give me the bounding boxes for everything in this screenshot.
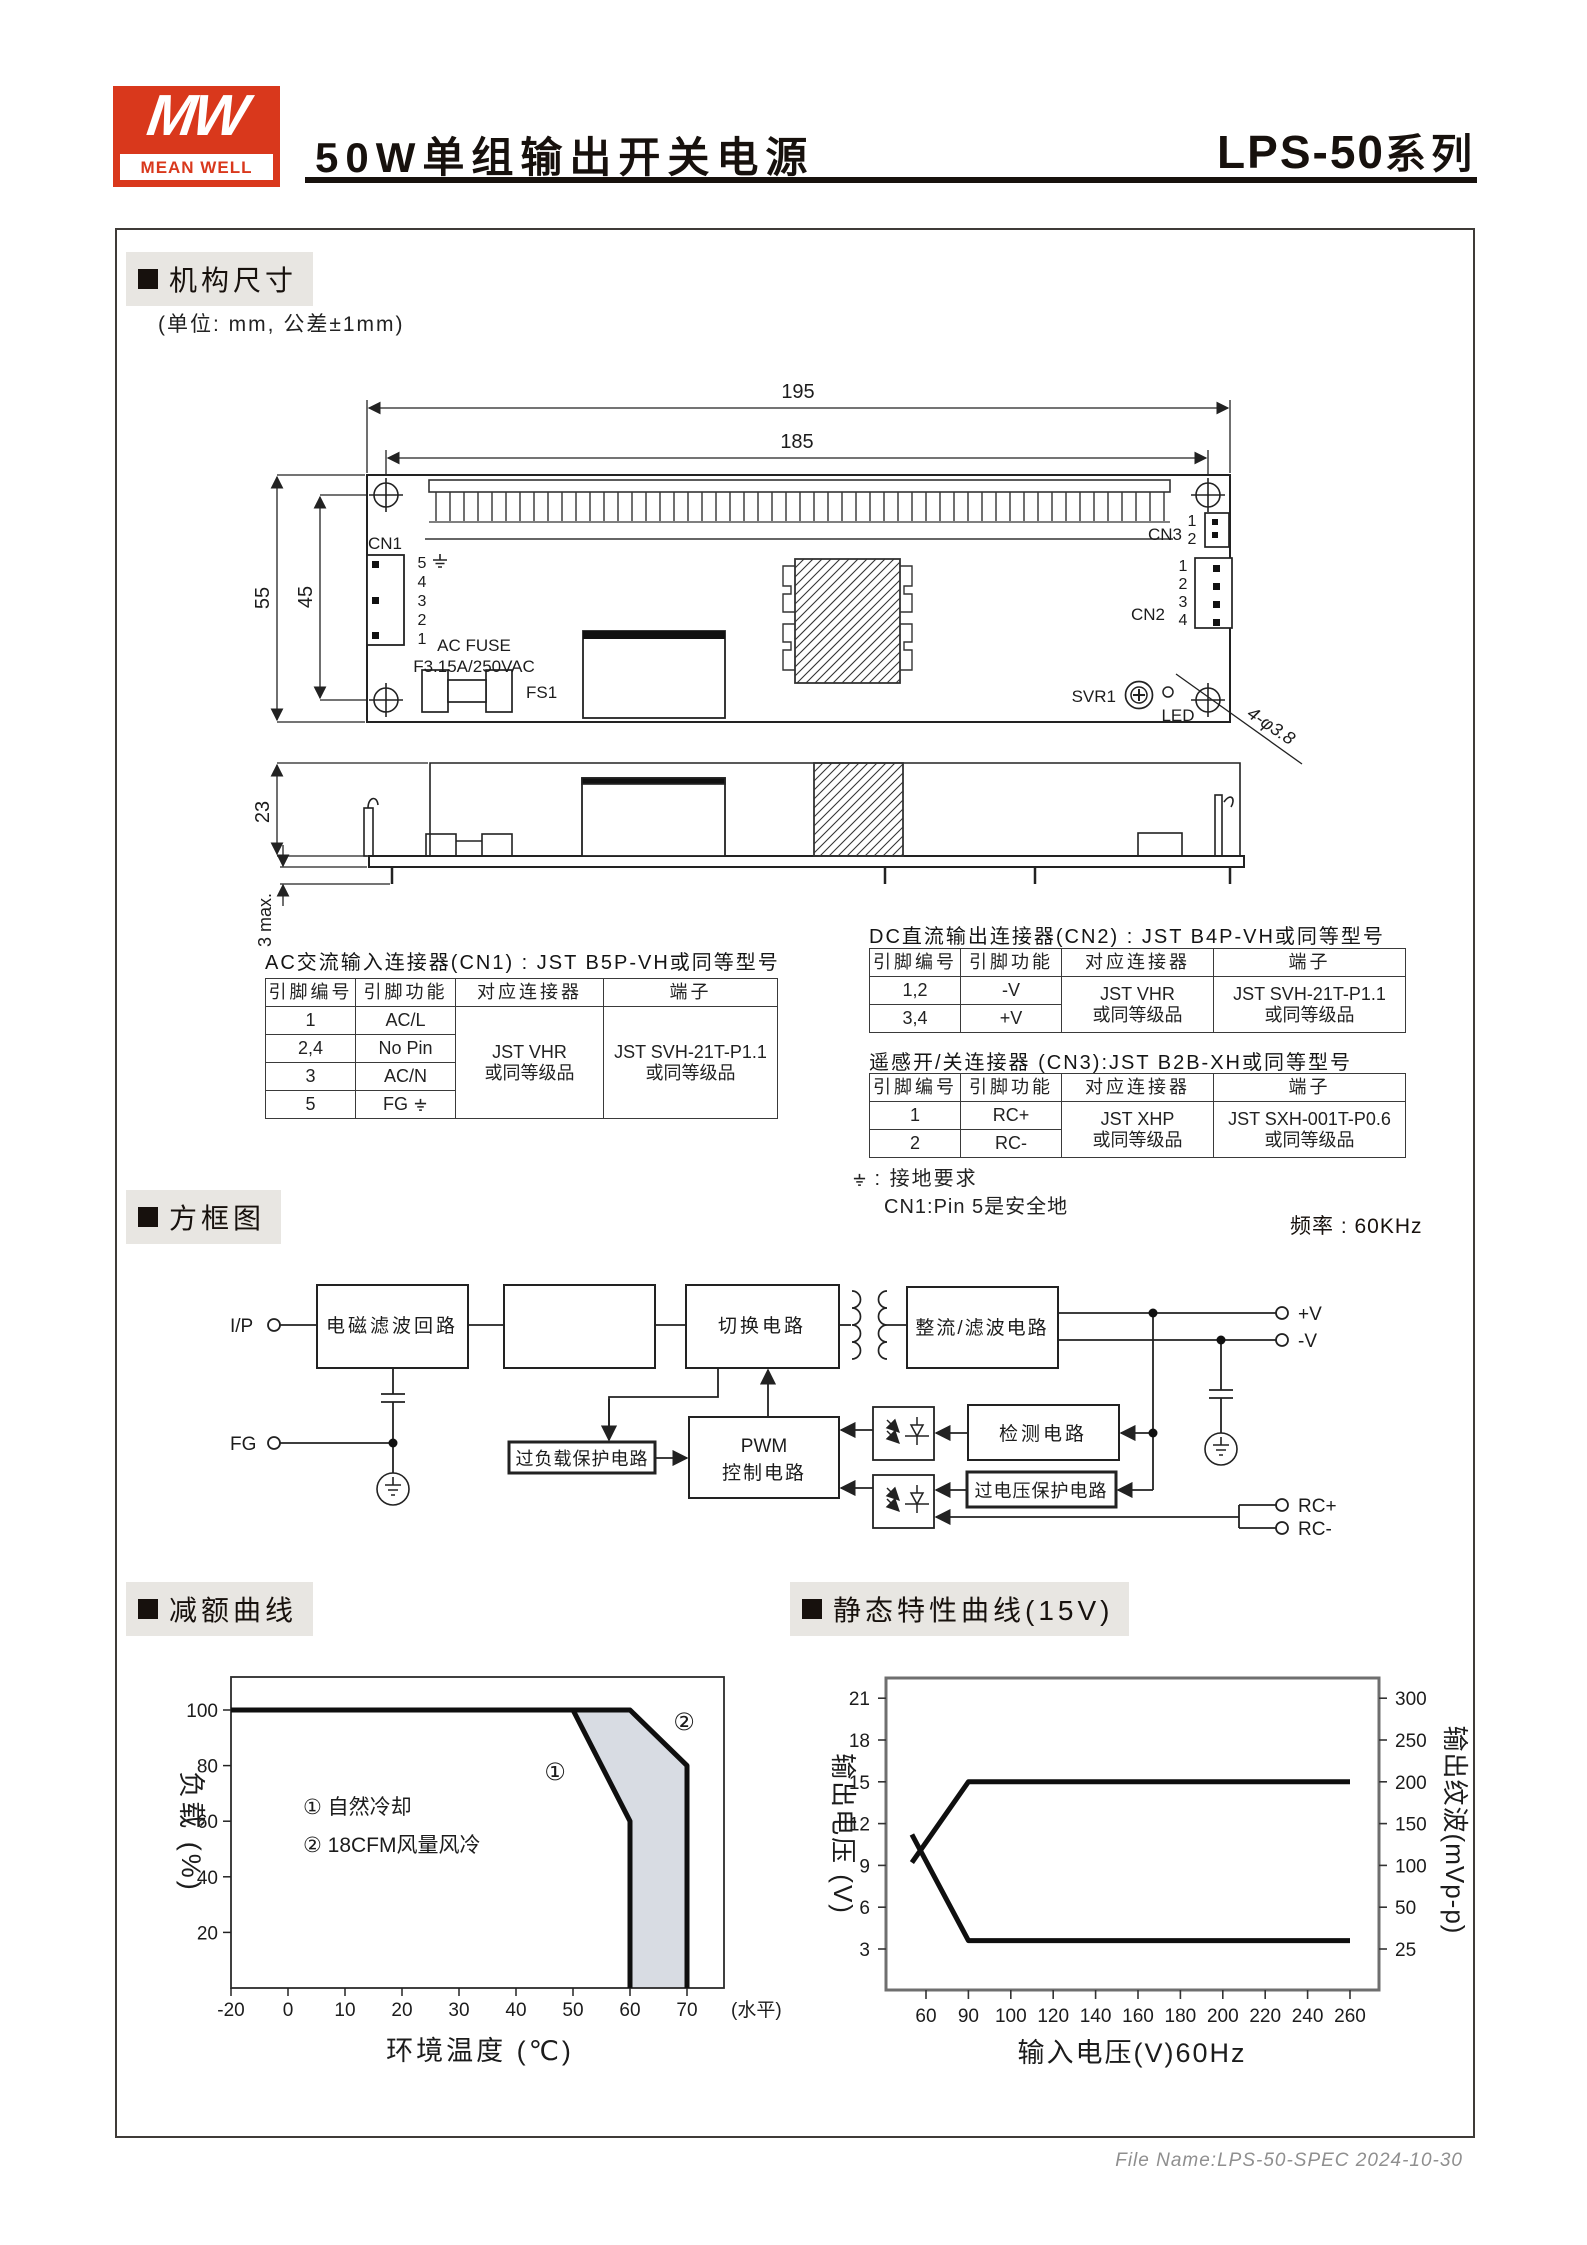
- table-cell: -V: [961, 977, 1062, 1005]
- svg-text:50: 50: [562, 2000, 583, 2021]
- svg-text:6: 6: [859, 1898, 870, 1919]
- page-title: 50W单组输出开关电源: [315, 124, 814, 185]
- table-cell: 1,2: [870, 977, 961, 1005]
- svg-text:21: 21: [849, 1689, 870, 1710]
- cn2-connector: 1234: [1179, 558, 1232, 629]
- terminal-rcminus: RC-: [1298, 1519, 1332, 1540]
- led-label: LED: [1161, 706, 1194, 725]
- svg-text:1: 1: [1188, 513, 1197, 530]
- datasheet-page: MW MEAN WELL 50W单组输出开关电源 LPS-50 系列 机构尺寸 …: [0, 0, 1587, 2245]
- dim-55: 55: [252, 587, 274, 609]
- cn3-connector: 12: [1188, 513, 1229, 548]
- box-switch: 切换电路: [718, 1315, 806, 1337]
- cn2-table-title: DC直流输出连接器(CN2) : JST B4P-VH或同等型号: [869, 920, 1385, 949]
- left-y-axis-label: 输出电压 (V): [828, 1753, 858, 1915]
- svg-text:2: 2: [1188, 531, 1197, 548]
- section-header-static-curve: 静态特性曲线(15V): [790, 1582, 1129, 1636]
- svg-text:3: 3: [859, 1940, 870, 1961]
- fs1-label: FS1: [526, 683, 557, 702]
- table-cell: 3: [266, 1063, 356, 1091]
- cn3-table: 引脚编号引脚功能对应连接器端子1RC+JST XHP或同等级品JST SXH-0…: [869, 1073, 1406, 1158]
- section-header-derating: 减额曲线: [126, 1582, 313, 1636]
- chart-legend: ① 自然冷却② 18CFM风量风冷: [303, 1796, 481, 1857]
- svg-text:1: 1: [1179, 558, 1188, 575]
- dim-3max: 3 max.: [255, 893, 275, 947]
- svg-text:100: 100: [995, 2006, 1027, 2027]
- section-marker-icon: [138, 269, 158, 289]
- table-cell: +V: [961, 1005, 1062, 1033]
- box-ovp: 过电压保护电路: [975, 1481, 1108, 1501]
- block-diagram: I/P FG +V -V RC+ RC-: [150, 1270, 1470, 1570]
- section-label: 方框图: [169, 1197, 265, 1237]
- table-cell: RC+: [961, 1102, 1062, 1130]
- section-label: 减额曲线: [169, 1589, 297, 1629]
- svg-text:100: 100: [186, 1701, 218, 1722]
- column-header: 引脚功能: [356, 979, 456, 1007]
- svg-text:300: 300: [1395, 1689, 1427, 1710]
- svg-text:(水平): (水平): [731, 1999, 782, 2021]
- cn2-label: CN2: [1131, 605, 1165, 624]
- y-axis-label: 负载 (%): [176, 1771, 206, 1893]
- svg-text:20: 20: [391, 2000, 412, 2021]
- section-header-block-diagram: 方框图: [126, 1190, 281, 1244]
- svg-text:40: 40: [505, 2000, 526, 2021]
- series-title: LPS-50 系列: [1217, 120, 1477, 180]
- cn1-table-title: AC交流输入连接器(CN1) : JST B5P-VH或同等型号: [265, 946, 780, 975]
- capacitor-top: [583, 631, 725, 718]
- column-header: 对应连接器: [1062, 1074, 1214, 1102]
- terminal-rcplus: RC+: [1298, 1496, 1337, 1517]
- svg-text:220: 220: [1249, 2006, 1281, 2027]
- table-cell: 1: [870, 1102, 961, 1130]
- svg-text:100: 100: [1395, 1856, 1427, 1877]
- table-cell: No Pin: [356, 1035, 456, 1063]
- x-axis-label: 环境温度 (℃): [386, 2036, 574, 2066]
- svg-text:160: 160: [1122, 2006, 1154, 2027]
- right-y-axis-label: 输出纹波(mVp-p): [1440, 1726, 1470, 1935]
- box-olp: 过负载保护电路: [516, 1449, 649, 1469]
- terminal-ip: I/P: [230, 1316, 253, 1337]
- terminal-vminus: -V: [1298, 1331, 1317, 1352]
- column-header: 端子: [1214, 949, 1406, 977]
- column-header: 引脚编号: [266, 979, 356, 1007]
- svg-text:250: 250: [1395, 1731, 1427, 1752]
- cn3-label: CN3: [1148, 525, 1182, 544]
- meanwell-logo: MW MEAN WELL: [113, 86, 280, 187]
- svr1-label: SVR1: [1072, 687, 1116, 706]
- logo-mw-glyph: MW: [108, 82, 284, 149]
- table-row: 1,2-VJST VHR或同等级品JST SVH-21T-P1.1或同等级品: [870, 977, 1406, 1005]
- dim-45: 45: [295, 586, 317, 608]
- box-rectifier-out: 整流/滤波电路: [915, 1317, 1048, 1339]
- dim-195: 195: [781, 381, 814, 403]
- table-cell: AC/L: [356, 1007, 456, 1035]
- cn2-table: 引脚编号引脚功能对应连接器端子1,2-VJST VHR或同等级品JST SVH-…: [869, 948, 1406, 1033]
- column-header: 端子: [1214, 1074, 1406, 1102]
- cn3-table-title: 遥感开/关连接器 (CN3):JST B2B-XH或同等型号: [869, 1046, 1352, 1075]
- svg-text:3: 3: [418, 593, 427, 610]
- table-cell: 5: [266, 1091, 356, 1119]
- svg-text:90: 90: [958, 2006, 979, 2027]
- svg-text:200: 200: [1207, 2006, 1239, 2027]
- merged-cell: JST SVH-21T-P1.1或同等级品: [604, 1007, 778, 1119]
- svg-text:50: 50: [1395, 1898, 1416, 1919]
- svg-text:18: 18: [849, 1731, 870, 1752]
- merged-cell: JST SVH-21T-P1.1或同等级品: [1214, 977, 1406, 1033]
- mechanical-drawing: 195 185 55 45: [130, 340, 1470, 990]
- terminal-fg: FG: [230, 1434, 256, 1455]
- section-label: 静态特性曲线(15V): [833, 1589, 1113, 1629]
- svg-text:240: 240: [1292, 2006, 1324, 2027]
- svg-text:20: 20: [197, 1923, 218, 1944]
- pcb-top-view: 54321 CN1 AC FUSE F3.15A/250VAC FS1: [367, 475, 1302, 764]
- column-header: 引脚功能: [961, 1074, 1062, 1102]
- svg-text:② 18CFM风量风冷: ② 18CFM风量风冷: [303, 1834, 481, 1857]
- cn2-pin-labels: 1234: [1179, 558, 1188, 629]
- merged-cell: JST VHR或同等级品: [1062, 977, 1214, 1033]
- svg-text:140: 140: [1080, 2006, 1112, 2027]
- column-header: 对应连接器: [456, 979, 604, 1007]
- svg-text:60: 60: [619, 2000, 640, 2021]
- static-curves: [912, 1782, 1350, 1941]
- ground-note-text-line: CN1:Pin 5是安全地: [884, 1190, 1068, 1219]
- merged-cell: JST VHR或同等级品: [456, 1007, 604, 1119]
- svg-text:25: 25: [1395, 1940, 1416, 1961]
- svg-text:9: 9: [859, 1856, 870, 1877]
- frequency-note: 频率 : 60KHz: [1290, 1210, 1423, 1240]
- column-header: 引脚编号: [870, 949, 961, 977]
- svg-text:150: 150: [1395, 1815, 1427, 1836]
- svg-text:120: 120: [1037, 2006, 1069, 2027]
- svg-text:0: 0: [283, 2000, 294, 2021]
- merged-cell: JST SXH-001T-P0.6或同等级品: [1214, 1102, 1406, 1158]
- static-characteristic-chart: 36912151821 2550100150200250300 60901001…: [810, 1662, 1470, 2092]
- svg-text:260: 260: [1334, 2006, 1366, 2027]
- svg-text:180: 180: [1165, 2006, 1197, 2027]
- derating-chart: 20406080100 -20010203040506070(水平) ① 自然冷…: [150, 1662, 790, 2092]
- ground-note-symbol-line: : 接地要求: [852, 1162, 978, 1191]
- svg-text:① 自然冷却: ① 自然冷却: [303, 1796, 412, 1819]
- dim-23: 23: [252, 801, 274, 823]
- section-marker-icon: [138, 1207, 158, 1227]
- fuse-line1: AC FUSE: [437, 636, 511, 655]
- box-pwm-line1: PWM: [741, 1436, 787, 1457]
- table-row: 1AC/LJST VHR或同等级品JST SVH-21T-P1.1或同等级品: [266, 1007, 778, 1035]
- fuse-line2: F3.15A/250VAC: [413, 657, 535, 676]
- series-model: LPS-50: [1217, 125, 1385, 179]
- box-emi: 电磁滤波回路: [326, 1315, 458, 1337]
- svg-text:200: 200: [1395, 1773, 1427, 1794]
- column-header: 引脚编号: [870, 1074, 961, 1102]
- section-marker-icon: [138, 1599, 158, 1619]
- box-detect: 检测电路: [999, 1423, 1087, 1445]
- section-marker-icon: [802, 1599, 822, 1619]
- transformer-icon: [852, 1291, 887, 1359]
- x-axis-ticks: -20010203040506070(水平): [217, 1988, 781, 2021]
- dim-185: 185: [780, 431, 813, 453]
- svg-text:60: 60: [915, 2006, 936, 2027]
- svg-text:2: 2: [418, 612, 427, 629]
- logo-brand-text: MEAN WELL: [120, 154, 273, 180]
- right-y-axis-ticks: 2550100150200250300: [1379, 1689, 1427, 1961]
- column-header: 对应连接器: [1062, 949, 1214, 977]
- section-label: 机构尺寸: [169, 259, 297, 299]
- svg-text:4: 4: [1179, 612, 1188, 629]
- svg-text:①: ①: [544, 1759, 566, 1786]
- series-suffix: 系列: [1385, 120, 1477, 180]
- column-header: 端子: [604, 979, 778, 1007]
- terminal-vplus: +V: [1298, 1304, 1322, 1325]
- svg-text:4: 4: [418, 574, 427, 591]
- svg-text:5: 5: [418, 555, 427, 572]
- svg-text:10: 10: [334, 2000, 355, 2021]
- cn1-pin-labels: 54321: [418, 555, 427, 648]
- merged-cell: JST XHP或同等级品: [1062, 1102, 1214, 1158]
- column-header: 引脚功能: [961, 949, 1062, 977]
- table-cell: 1: [266, 1007, 356, 1035]
- section-header-mechanical: 机构尺寸: [126, 252, 313, 306]
- x-axis-ticks: 6090100120140160180200220240260: [915, 1990, 1365, 2027]
- table-cell: 3,4: [870, 1005, 961, 1033]
- svg-text:1: 1: [418, 631, 427, 648]
- table-cell: 2: [870, 1130, 961, 1158]
- title-underline: [305, 177, 1477, 183]
- file-name-note: File Name:LPS-50-SPEC 2024-10-30: [1115, 2150, 1463, 2172]
- cn1-label: CN1: [368, 534, 402, 553]
- box-pwm-line2: 控制电路: [722, 1462, 806, 1484]
- svg-text:3: 3: [1179, 594, 1188, 611]
- svg-text:30: 30: [448, 2000, 469, 2021]
- svg-text:-20: -20: [217, 2000, 244, 2021]
- svg-text:70: 70: [676, 2000, 697, 2021]
- svg-text:②: ②: [673, 1709, 695, 1736]
- table-row: 1RC+JST XHP或同等级品JST SXH-001T-P0.6或同等级品: [870, 1102, 1406, 1130]
- table-cell: AC/N: [356, 1063, 456, 1091]
- cn3-pin-labels: 12: [1188, 513, 1197, 548]
- table-cell: 2,4: [266, 1035, 356, 1063]
- cn1-table: 引脚编号引脚功能对应连接器端子1AC/LJST VHR或同等级品JST SVH-…: [265, 978, 778, 1119]
- x-axis-label: 输入电压(V)60Hz: [1017, 2038, 1246, 2068]
- table-cell: RC-: [961, 1130, 1062, 1158]
- plot-frame: [886, 1678, 1379, 1990]
- svg-text:2: 2: [1179, 576, 1188, 593]
- unit-note: (单位: mm, 公差±1mm): [158, 308, 405, 338]
- table-cell: FG: [356, 1091, 456, 1119]
